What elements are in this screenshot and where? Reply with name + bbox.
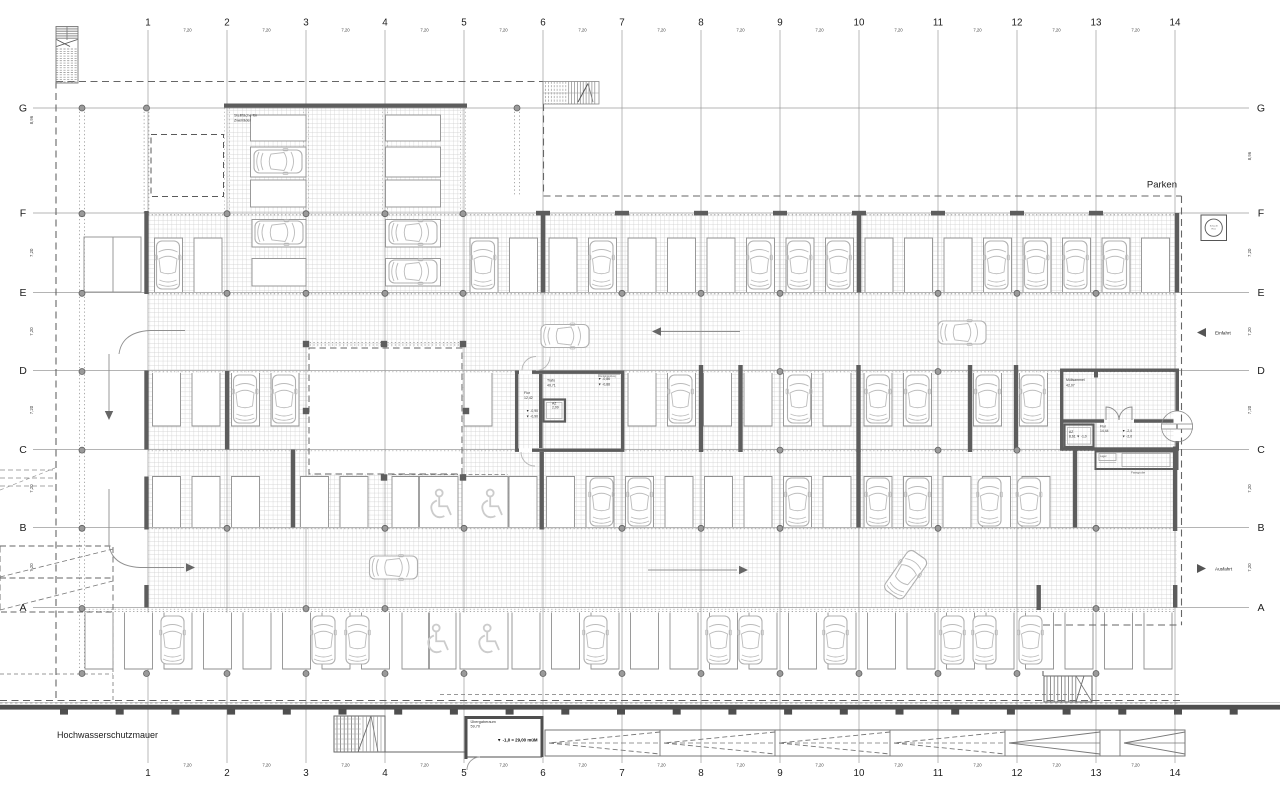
- svg-text:Heiz: Heiz: [1212, 229, 1216, 231]
- svg-text:7,20: 7,20: [578, 763, 587, 768]
- svg-text:E: E: [19, 287, 26, 299]
- svg-text:F: F: [20, 208, 26, 220]
- svg-text:7,20: 7,20: [657, 763, 666, 768]
- svg-text:5: 5: [461, 768, 467, 779]
- svg-text:7,20: 7,20: [262, 28, 271, 33]
- svg-text:1: 1: [145, 768, 150, 779]
- svg-text:14: 14: [1170, 18, 1181, 29]
- svg-text:7,20: 7,20: [973, 763, 982, 768]
- svg-text:40,71: 40,71: [547, 384, 556, 388]
- svg-text:7,20: 7,20: [29, 248, 34, 257]
- svg-text:9: 9: [777, 18, 782, 29]
- svg-text:▼ -0,90: ▼ -0,90: [526, 409, 538, 413]
- svg-text:9: 9: [777, 768, 782, 779]
- svg-text:10: 10: [854, 18, 865, 29]
- svg-text:Einfahrt: Einfahrt: [1215, 331, 1232, 336]
- svg-text:7,20: 7,20: [736, 28, 745, 33]
- svg-text:7,20: 7,20: [815, 28, 824, 33]
- svg-text:B: B: [19, 522, 26, 534]
- svg-text:7,20: 7,20: [1247, 563, 1252, 572]
- svg-text:7,20: 7,20: [499, 28, 508, 33]
- svg-text:8: 8: [698, 18, 704, 29]
- svg-text:1: 1: [145, 18, 150, 29]
- svg-text:C: C: [19, 444, 27, 456]
- svg-text:7,20: 7,20: [894, 28, 903, 33]
- svg-text:A: A: [1257, 602, 1264, 614]
- svg-text:Wandabwicklung: Wandabwicklung: [598, 375, 617, 378]
- svg-text:Zweiräder: Zweiräder: [234, 119, 252, 123]
- svg-text:8,96: 8,96: [29, 115, 34, 124]
- svg-text:B: B: [1257, 522, 1264, 534]
- svg-text:7,20: 7,20: [1131, 28, 1140, 33]
- svg-text:4: 4: [382, 768, 388, 779]
- svg-text:Lager: Lager: [1100, 454, 1107, 458]
- svg-text:5: 5: [461, 18, 467, 29]
- svg-text:7,20: 7,20: [29, 327, 34, 336]
- svg-text:▼ -0,88: ▼ -0,88: [598, 383, 610, 387]
- svg-text:▼ -2,0: ▼ -2,0: [1122, 429, 1132, 433]
- svg-text:59,70: 59,70: [471, 725, 481, 729]
- svg-text:7,20: 7,20: [815, 763, 824, 768]
- svg-text:A: A: [19, 602, 26, 614]
- svg-text:4: 4: [382, 18, 388, 29]
- svg-text:14,44: 14,44: [1100, 429, 1109, 433]
- svg-text:8,61 ▼ -1,0: 8,61 ▼ -1,0: [1069, 435, 1087, 439]
- svg-text:7,20: 7,20: [1247, 405, 1252, 414]
- svg-text:7,20: 7,20: [1052, 28, 1061, 33]
- svg-text:3: 3: [303, 768, 309, 779]
- svg-text:7,20: 7,20: [262, 763, 271, 768]
- svg-text:7,20: 7,20: [183, 28, 192, 33]
- svg-text:7,20: 7,20: [894, 763, 903, 768]
- svg-text:12: 12: [1012, 768, 1023, 779]
- svg-text:▼ -1,0 = 29,00 müM: ▼ -1,0 = 29,00 müM: [497, 738, 538, 743]
- svg-text:12: 12: [1012, 18, 1023, 29]
- svg-text:AZ: AZ: [1069, 430, 1073, 434]
- svg-text:Flur: Flur: [1100, 425, 1107, 429]
- svg-text:42,07: 42,07: [1066, 384, 1075, 388]
- svg-text:11: 11: [933, 18, 943, 29]
- svg-text:7,20: 7,20: [29, 484, 34, 493]
- svg-text:3: 3: [303, 18, 309, 29]
- svg-text:C: C: [1257, 444, 1265, 456]
- svg-text:7,20: 7,20: [29, 563, 34, 572]
- svg-text:7,20: 7,20: [578, 28, 587, 33]
- svg-text:7,20: 7,20: [736, 763, 745, 768]
- svg-text:7,20: 7,20: [1247, 484, 1252, 493]
- svg-text:7,20: 7,20: [1247, 327, 1252, 336]
- svg-text:Ausfahrt: Ausfahrt: [1215, 567, 1233, 572]
- svg-text:10: 10: [854, 768, 865, 779]
- svg-text:13: 13: [1091, 18, 1102, 29]
- svg-text:Trafo: Trafo: [547, 379, 555, 383]
- svg-text:7,20: 7,20: [499, 763, 508, 768]
- svg-text:Fassgrube: Fassgrube: [1131, 471, 1146, 475]
- svg-text:6: 6: [540, 768, 546, 779]
- svg-text:D: D: [19, 365, 27, 377]
- svg-text:E: E: [1257, 287, 1264, 299]
- svg-text:6: 6: [540, 18, 546, 29]
- svg-text:7: 7: [619, 18, 624, 29]
- svg-text:Hochwasserschutzmauer: Hochwasserschutzmauer: [57, 730, 158, 740]
- svg-text:11: 11: [933, 768, 943, 779]
- svg-text:7,20: 7,20: [1131, 763, 1140, 768]
- svg-text:▼ -0,90: ▼ -0,90: [526, 415, 538, 419]
- svg-text:D: D: [1257, 365, 1265, 377]
- svg-text:12,42: 12,42: [524, 396, 533, 400]
- svg-text:7,20: 7,20: [341, 763, 350, 768]
- svg-text:7,20: 7,20: [341, 28, 350, 33]
- svg-text:Schacht: Schacht: [1210, 225, 1218, 228]
- svg-text:▼ -2,0: ▼ -2,0: [1122, 435, 1132, 439]
- svg-text:7,20: 7,20: [29, 405, 34, 414]
- svg-text:7: 7: [619, 768, 624, 779]
- svg-text:F: F: [1258, 208, 1264, 220]
- svg-text:8: 8: [698, 768, 704, 779]
- svg-text:2: 2: [224, 18, 229, 29]
- svg-text:14: 14: [1170, 768, 1181, 779]
- svg-text:7,20: 7,20: [183, 763, 192, 768]
- svg-text:Flur: Flur: [524, 391, 531, 395]
- svg-text:G: G: [1257, 103, 1265, 115]
- svg-text:7,20: 7,20: [420, 763, 429, 768]
- svg-text:Parken: Parken: [1147, 180, 1177, 191]
- svg-text:Stellfläche für: Stellfläche für: [234, 114, 258, 118]
- svg-text:G: G: [19, 103, 27, 115]
- svg-text:2: 2: [224, 768, 229, 779]
- svg-text:7,20: 7,20: [973, 28, 982, 33]
- svg-text:7,20: 7,20: [1052, 763, 1061, 768]
- svg-text:13: 13: [1091, 768, 1102, 779]
- svg-text:Übergaberaum: Übergaberaum: [471, 720, 496, 724]
- svg-text:7,20: 7,20: [420, 28, 429, 33]
- svg-text:7,20: 7,20: [1247, 248, 1252, 257]
- svg-text:Müllsammel: Müllsammel: [1066, 378, 1085, 382]
- svg-text:8,96: 8,96: [1247, 151, 1252, 160]
- svg-text:2,99: 2,99: [552, 406, 559, 410]
- svg-text:7,20: 7,20: [657, 28, 666, 33]
